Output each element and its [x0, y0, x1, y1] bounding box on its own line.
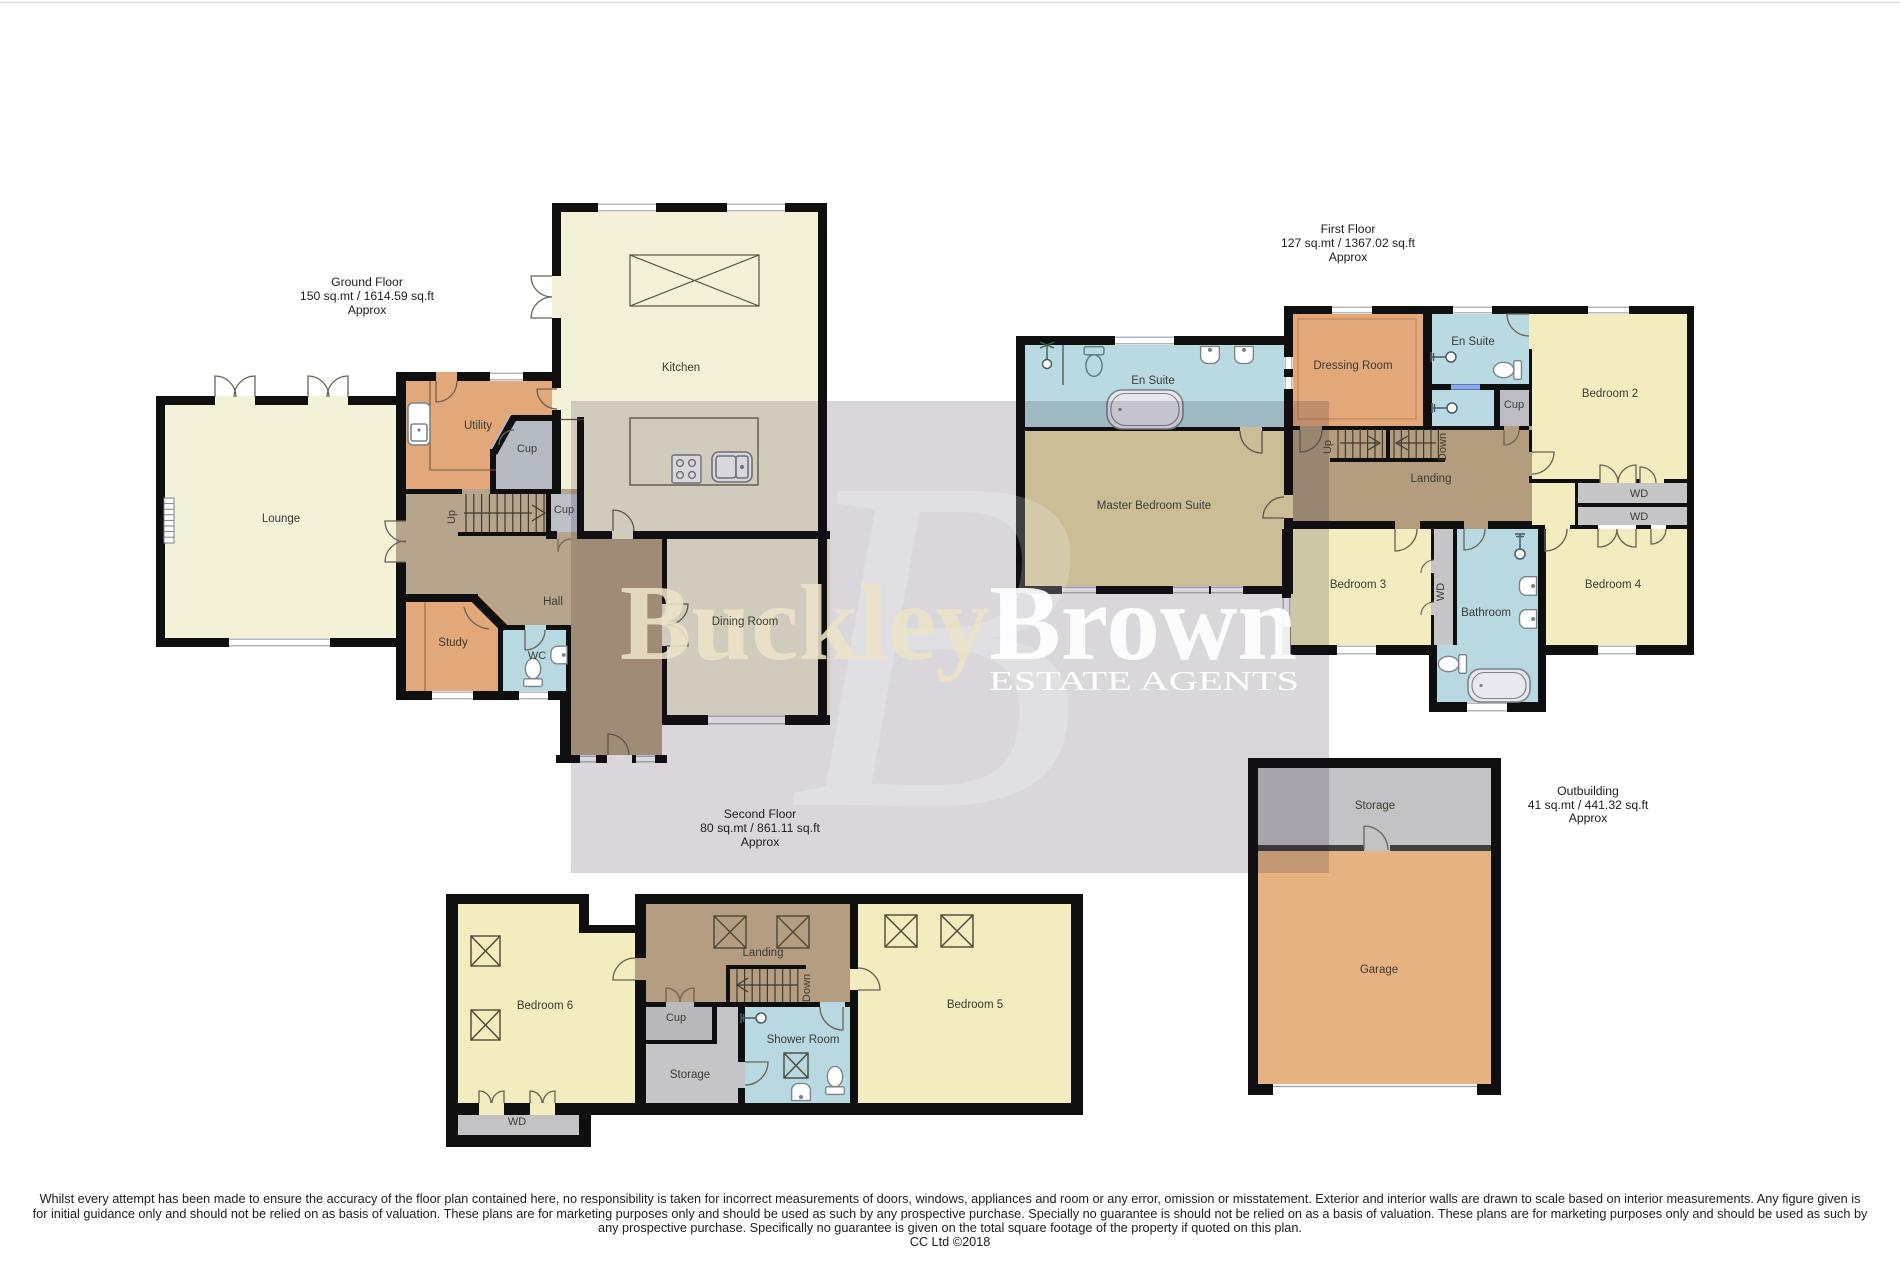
svg-text:Bedroom 2: Bedroom 2	[1582, 388, 1638, 400]
svg-text:Cup: Cup	[517, 443, 537, 455]
svg-text:Approx: Approx	[348, 303, 387, 317]
svg-text:Storage: Storage	[1355, 800, 1395, 812]
svg-text:WD: WD	[1630, 488, 1648, 500]
svg-text:Approx: Approx	[1569, 811, 1608, 825]
svg-text:Bedroom 6: Bedroom 6	[517, 1000, 573, 1012]
svg-text:Hall: Hall	[543, 596, 563, 608]
svg-text:ESTATE AGENTS: ESTATE AGENTS	[989, 666, 1299, 696]
svg-text:Landing: Landing	[1411, 473, 1452, 485]
svg-text:Up: Up	[1322, 440, 1334, 454]
svg-text:En Suite: En Suite	[1131, 375, 1174, 387]
svg-text:Utility: Utility	[464, 420, 492, 432]
svg-text:Approx: Approx	[1329, 250, 1368, 264]
svg-text:41 sq.mt / 441.32 sq.ft: 41 sq.mt / 441.32 sq.ft	[1528, 798, 1649, 812]
svg-text:Approx: Approx	[741, 835, 780, 849]
svg-text:Dining Room: Dining Room	[712, 616, 778, 628]
svg-text:Garage: Garage	[1360, 964, 1398, 976]
svg-text:Landing: Landing	[743, 947, 784, 959]
svg-text:80 sq.mt / 861.11 sq.ft: 80 sq.mt / 861.11 sq.ft	[700, 821, 820, 835]
svg-text:WD: WD	[1435, 583, 1447, 601]
svg-text:for initial guidance only and: for initial guidance only and should not…	[33, 1207, 1868, 1221]
svg-text:En Suite: En Suite	[1451, 336, 1494, 348]
svg-text:127 sq.mt / 1367.02 sq.ft: 127 sq.mt / 1367.02 sq.ft	[1281, 236, 1416, 250]
svg-text:First Floor: First Floor	[1321, 222, 1376, 236]
svg-text:WD: WD	[508, 1116, 526, 1128]
svg-text:Shower Room: Shower Room	[767, 1034, 840, 1046]
svg-text:WD: WD	[1630, 511, 1648, 523]
svg-text:Second Floor: Second Floor	[724, 807, 797, 821]
svg-text:CC Ltd ©2018: CC Ltd ©2018	[910, 1235, 991, 1249]
svg-text:Kitchen: Kitchen	[662, 362, 700, 374]
svg-text:Bathroom: Bathroom	[1461, 607, 1511, 619]
svg-text:150 sq.mt / 1614.59 sq.ft: 150 sq.mt / 1614.59 sq.ft	[300, 289, 435, 303]
svg-text:Up: Up	[446, 510, 458, 524]
svg-text:Down: Down	[801, 974, 813, 1002]
svg-text:Outbuilding: Outbuilding	[1557, 784, 1619, 798]
svg-text:Bedroom 3: Bedroom 3	[1330, 579, 1386, 591]
svg-text:any prospective purchase. Spec: any prospective purchase. Specifically n…	[598, 1221, 1302, 1235]
svg-text:Down: Down	[1437, 433, 1449, 461]
svg-text:Cup: Cup	[1504, 399, 1524, 411]
svg-text:Cup: Cup	[554, 504, 574, 516]
svg-text:Ground Floor: Ground Floor	[331, 275, 403, 289]
svg-text:Storage: Storage	[670, 1069, 710, 1081]
svg-text:WC: WC	[528, 650, 546, 662]
svg-text:Study: Study	[438, 637, 468, 649]
svg-text:Bedroom 4: Bedroom 4	[1585, 579, 1642, 591]
svg-text:Bedroom 5: Bedroom 5	[947, 999, 1003, 1011]
svg-text:Cup: Cup	[666, 1012, 686, 1024]
svg-text:Whilst every attempt has been: Whilst every attempt has been made to en…	[40, 1192, 1861, 1206]
svg-text:Dressing Room: Dressing Room	[1313, 360, 1392, 372]
svg-text:Master Bedroom Suite: Master Bedroom Suite	[1097, 500, 1211, 512]
svg-text:Lounge: Lounge	[262, 513, 300, 525]
